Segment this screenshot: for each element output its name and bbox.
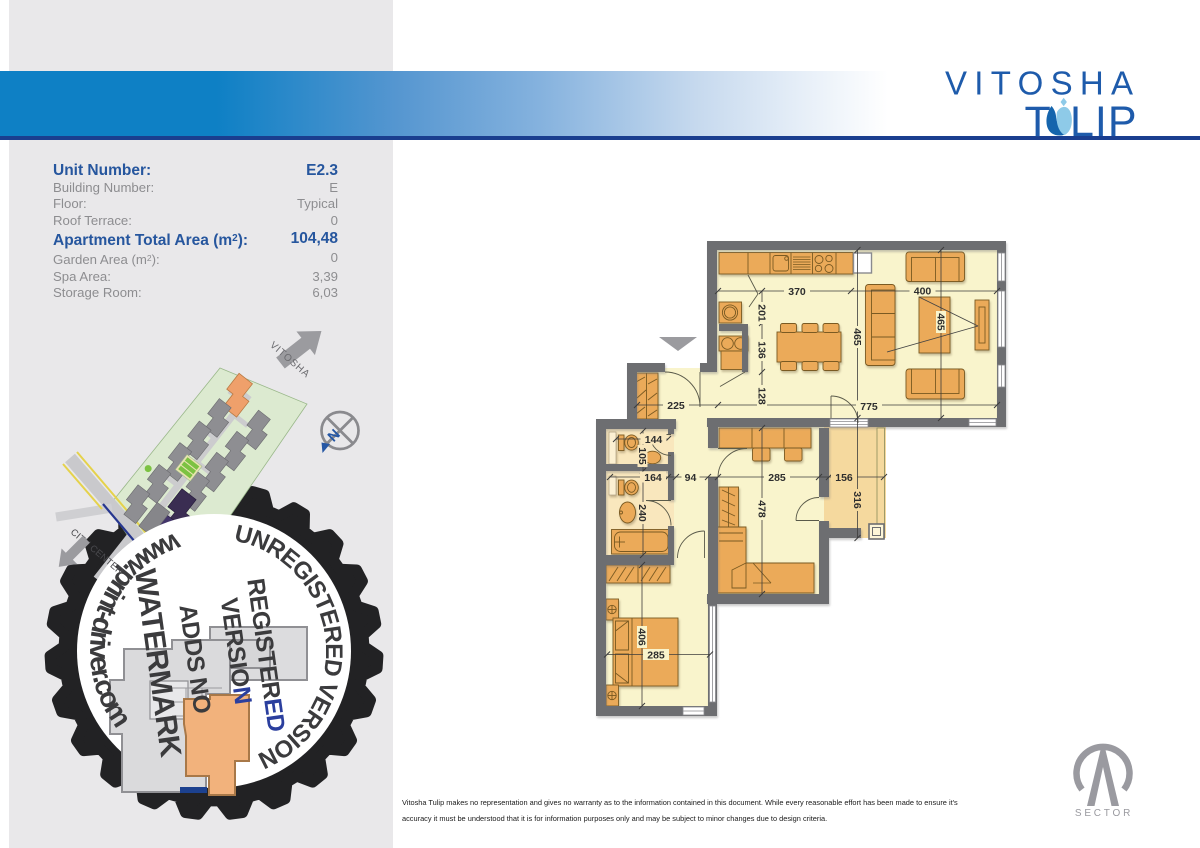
svg-text:94: 94: [685, 472, 697, 484]
svg-text:285: 285: [768, 472, 786, 484]
svg-text:240: 240: [636, 504, 648, 522]
svg-text:136: 136: [756, 341, 768, 359]
svg-text:225: 225: [667, 400, 685, 412]
svg-text:156: 156: [835, 472, 853, 484]
svg-text:478: 478: [756, 500, 768, 518]
svg-text:316: 316: [851, 491, 863, 509]
svg-text:128: 128: [756, 387, 768, 405]
svg-text:406: 406: [636, 628, 648, 646]
svg-text:144: 144: [645, 434, 663, 446]
svg-text:201: 201: [756, 304, 768, 322]
svg-text:465: 465: [935, 313, 947, 331]
svg-text:400: 400: [914, 286, 932, 298]
svg-text:775: 775: [860, 401, 878, 413]
svg-text:285: 285: [647, 650, 665, 662]
svg-text:370: 370: [788, 286, 806, 298]
svg-text:164: 164: [644, 472, 662, 484]
svg-text:105: 105: [636, 447, 648, 465]
svg-text:SECTOR: SECTOR: [1075, 808, 1133, 819]
svg-text:465: 465: [851, 328, 863, 346]
